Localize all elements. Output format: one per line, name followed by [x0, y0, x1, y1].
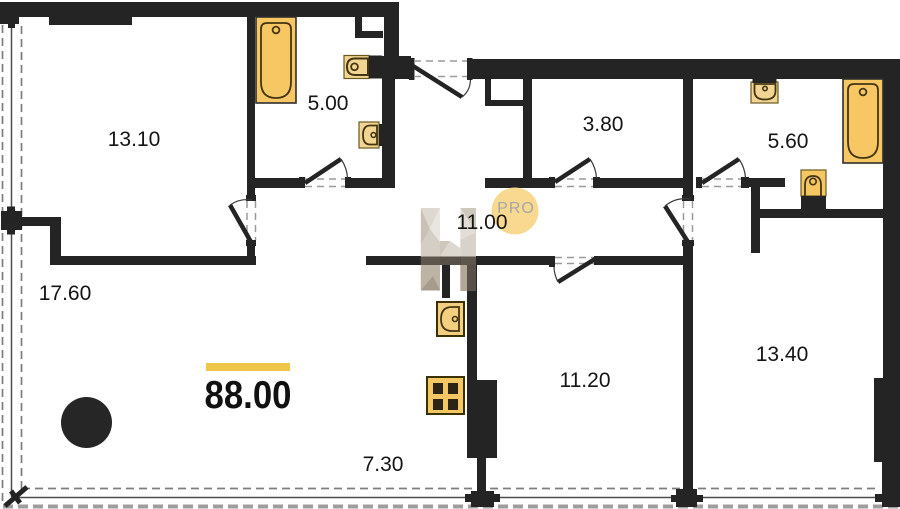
svg-text:5.60: 5.60: [768, 130, 809, 153]
svg-text:3.80: 3.80: [583, 113, 624, 136]
svg-text:13.10: 13.10: [108, 128, 161, 151]
svg-text:11.00: 11.00: [457, 211, 508, 234]
svg-text:17.60: 17.60: [39, 282, 92, 305]
svg-text:13.40: 13.40: [756, 343, 809, 366]
svg-text:11.20: 11.20: [560, 369, 611, 392]
svg-text:88.00: 88.00: [205, 374, 292, 417]
svg-text:7.30: 7.30: [363, 453, 404, 476]
svg-text:5.00: 5.00: [308, 92, 349, 115]
